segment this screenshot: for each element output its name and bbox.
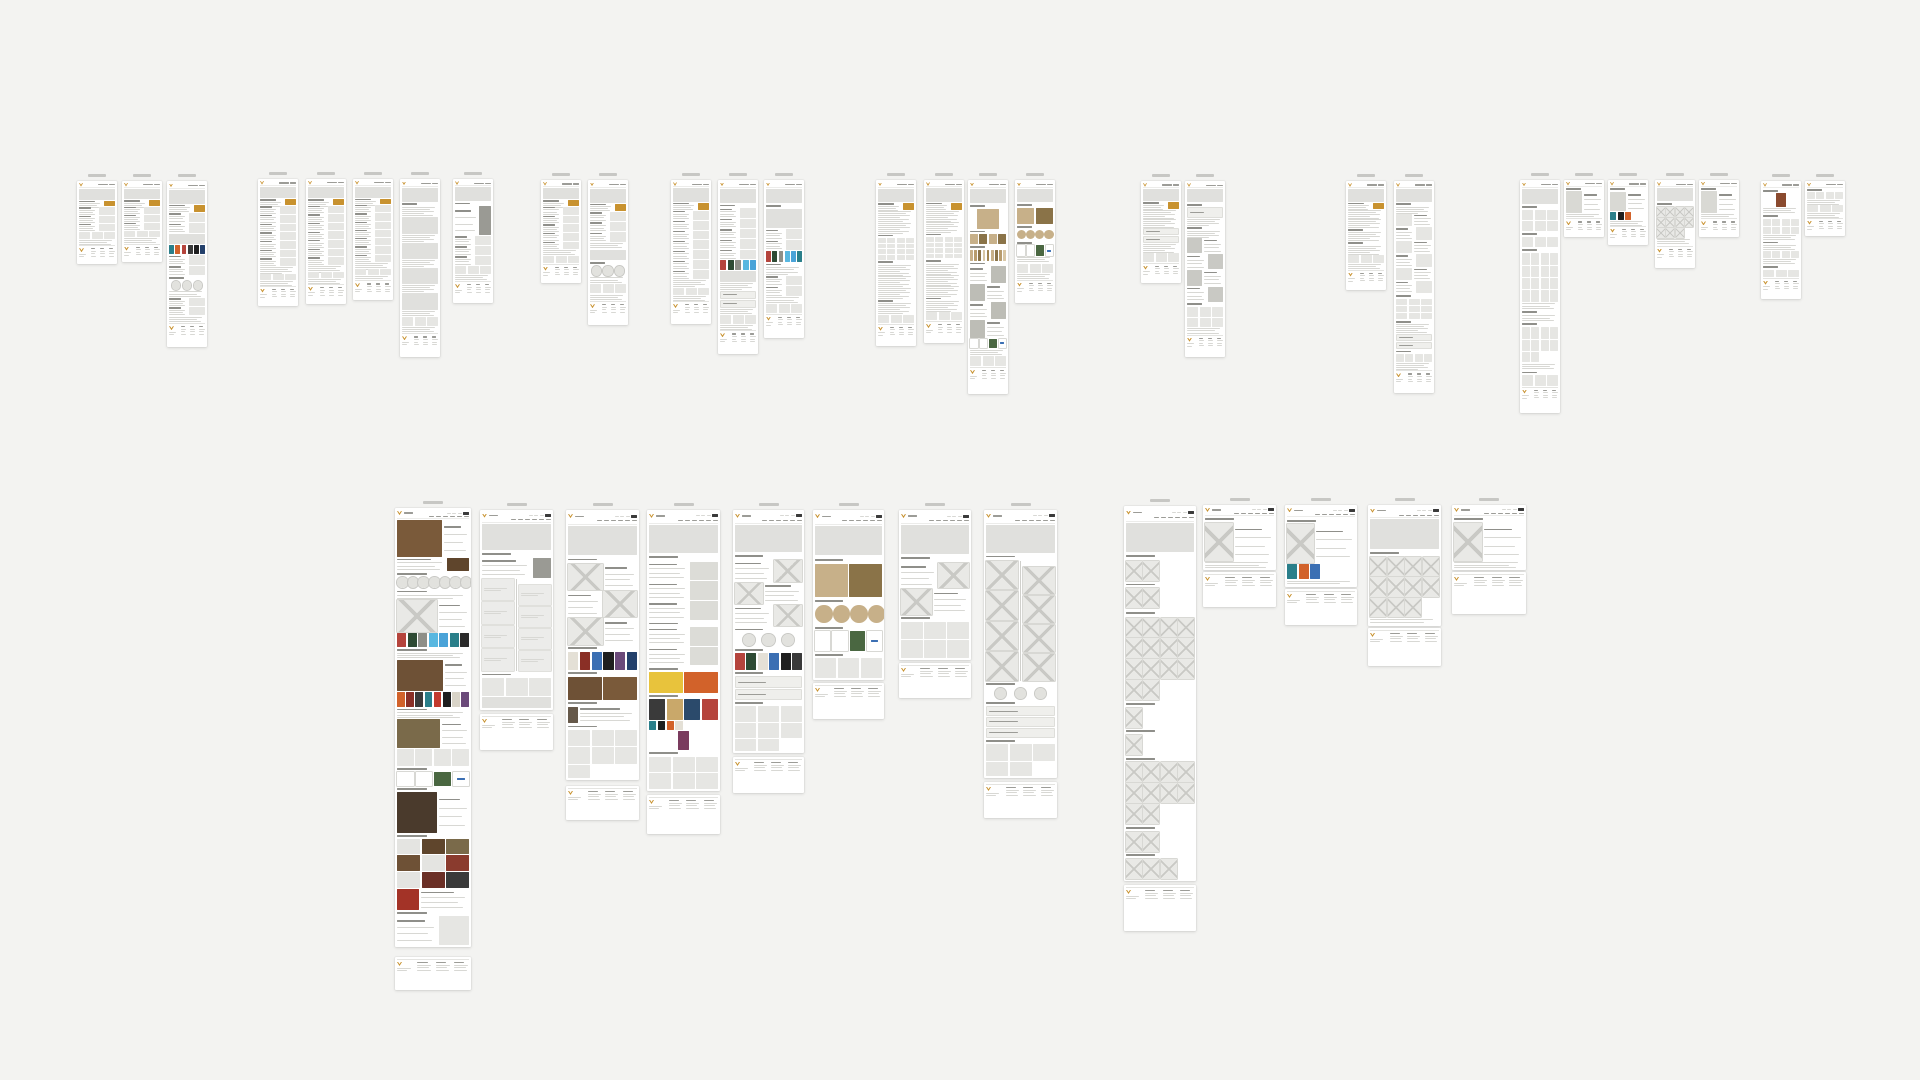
text-line [79,224,91,225]
text-column [543,216,561,224]
page-frame[interactable] [395,508,471,947]
frame-label[interactable] [1230,498,1250,501]
text-line [397,940,432,941]
text-line [669,808,682,809]
row-t [926,297,962,300]
row-f [986,784,1055,816]
page-frame[interactable] [813,683,884,719]
card-cell [429,633,438,648]
text-line [1143,210,1176,211]
text-line [754,767,765,768]
page-frame[interactable] [876,180,916,346]
row-l [402,311,438,317]
image-placeholder [189,266,205,275]
text-line [91,248,95,249]
page-frame[interactable] [480,714,553,750]
frame-label[interactable] [1816,174,1834,177]
logo-icon [308,181,312,185]
image-placeholder [1208,287,1223,302]
page-frame[interactable] [122,181,162,262]
page-frame[interactable] [1203,572,1276,607]
text-line [124,252,131,253]
text-line [169,305,185,306]
page-frame[interactable] [984,510,1057,778]
footer-links-column [145,247,151,260]
frame-label[interactable] [775,173,793,176]
frame-label[interactable] [729,173,747,176]
text-line [421,907,464,908]
text-line [1378,275,1384,276]
card-cell [627,652,637,670]
text-line [1187,223,1219,224]
text-line [1348,232,1381,233]
card-cell [1299,564,1309,578]
card-cell [1396,313,1407,319]
text-line [543,233,555,234]
page-frame[interactable] [1394,181,1434,393]
row-f [1370,630,1439,664]
section-title [1126,758,1155,760]
page-frame[interactable] [924,180,964,343]
text-line [1629,183,1639,184]
frame-label[interactable] [1011,503,1031,506]
page-frame[interactable] [353,179,393,300]
partner-card [815,631,830,651]
text-line [750,336,756,337]
row-f [720,330,756,352]
row-c [1657,207,1693,217]
frame-label[interactable] [1357,174,1375,177]
text-line [1155,273,1160,274]
text-line [878,271,900,272]
partner-card [416,772,433,787]
text-line [1324,599,1335,600]
text-line [308,225,324,226]
frame-label[interactable] [411,172,429,175]
page-frame[interactable] [671,180,711,324]
text-line [355,240,371,241]
card-cell [897,249,905,254]
card-cell [924,640,946,658]
page-frame[interactable] [718,180,758,354]
footer-links-column [602,304,608,323]
card-cell [175,245,180,254]
text-line [1038,515,1042,516]
text-line [260,230,276,231]
text-line [1763,212,1795,213]
frame-label[interactable] [1196,174,1214,177]
frame-label[interactable] [979,173,997,176]
text-line [1154,517,1159,518]
image-placeholder [1396,241,1412,253]
frame-label[interactable] [364,172,382,175]
text-line [611,304,615,305]
text-line [454,967,466,968]
page-frame[interactable] [813,510,884,680]
card-cell [781,653,791,670]
circle-image [397,577,408,588]
empty-slot [1640,212,1646,220]
text-line [489,515,498,516]
text-line [1763,286,1770,287]
text-line [1041,792,1052,793]
empty-slot [1423,598,1439,617]
empty-slot [693,721,700,730]
nav-top-row [482,514,551,518]
page-frame[interactable] [1564,180,1604,237]
green-button-card [850,631,865,651]
text-line [1187,233,1215,234]
card-cell [1541,253,1549,264]
page-frame[interactable] [1203,505,1276,570]
row-c [1017,208,1053,224]
text-line [1522,395,1529,396]
footer-links-column [1006,787,1020,816]
canvas[interactable] [0,0,1920,1080]
row-s [568,591,637,617]
text-line [590,282,622,283]
page-frame[interactable] [566,786,639,820]
card-cell [273,274,284,280]
row-b [1143,183,1179,188]
text-line [329,295,334,296]
hero-block [455,187,491,200]
frame-label[interactable] [317,172,335,175]
text-line [450,516,455,517]
text-line [732,339,737,340]
row-t [1763,189,1799,192]
text-line [355,265,383,266]
frame-label[interactable] [1531,173,1549,176]
page-frame[interactable] [1655,180,1695,268]
text-line [260,271,292,272]
row-c [1763,251,1799,258]
text-line [1622,234,1627,235]
section-title [1763,190,1778,192]
page-frame[interactable] [541,180,581,283]
card-cell [675,721,682,730]
text-line [1722,227,1727,228]
text-line [260,206,272,207]
page-frame[interactable] [1805,181,1845,236]
page-frame[interactable] [1124,885,1196,931]
frame-label[interactable] [1311,498,1331,501]
card-cell [897,238,905,243]
text-line [1204,276,1221,277]
page-frame[interactable] [733,757,804,793]
text-line [1425,641,1438,642]
text-line [397,933,428,934]
card-cell [1541,340,1549,351]
text-line [169,296,201,297]
card-cell [779,304,790,312]
text-line [926,215,958,216]
card-cell [1126,762,1142,782]
page-frame[interactable] [899,510,971,660]
page-frame[interactable] [453,179,493,303]
section-title [970,205,985,207]
frame-label[interactable] [88,174,106,177]
text-line [956,329,961,330]
hero-block [735,525,802,552]
text-line [464,516,469,517]
page-frame[interactable] [566,510,639,780]
row-l [673,296,709,300]
logo-icon [735,762,740,766]
page-frame[interactable] [1285,505,1357,587]
row-f [878,324,914,344]
page-frame[interactable] [1185,181,1225,357]
page-frame[interactable] [1368,628,1441,666]
frame-label[interactable] [925,503,945,506]
text-line [1399,337,1413,338]
circle-image [418,577,429,588]
page-frame[interactable] [1346,181,1386,290]
frame-label[interactable] [1152,174,1170,177]
text-line [539,519,544,520]
frame-label[interactable] [887,173,905,176]
card-cell [1187,318,1198,328]
row-c [1522,375,1558,385]
text-line [720,285,748,286]
text-line [1522,318,1550,319]
text-line [154,247,158,248]
footer-links-column [1155,266,1161,281]
row-s [455,206,491,235]
text-line [897,184,907,185]
text-line [970,273,987,274]
text-line [1763,247,1791,248]
card-cell [901,640,923,658]
card-cell [779,251,784,262]
text-line [519,727,532,728]
row-l [1763,245,1799,250]
row-t [1126,582,1194,587]
page-frame[interactable] [395,957,471,990]
image-placeholder [375,222,391,229]
text-column [308,231,326,239]
text-column [355,246,373,253]
row-t [766,204,802,208]
card-cell [104,232,115,238]
page-frame[interactable] [77,181,117,264]
card-cell [1405,557,1421,576]
frame-label[interactable] [935,173,953,176]
section-title [735,702,763,704]
text-line [1513,509,1517,510]
nav-links-row [1287,514,1355,515]
card-cell [698,288,709,295]
text-line [649,588,685,589]
frame-label[interactable] [178,174,196,177]
text-line [669,803,682,804]
page-frame[interactable] [984,782,1057,818]
text-line [98,184,108,185]
frame-label[interactable] [133,174,151,177]
page-frame[interactable] [1285,589,1357,625]
text-line [439,605,460,606]
card-cell [1033,744,1055,761]
text-line [417,965,431,966]
text-line [720,229,732,230]
page-frame[interactable] [1520,180,1560,413]
text-line [521,659,544,660]
text-line [1713,224,1719,225]
page-frame[interactable] [1141,181,1181,283]
text-line [1622,236,1627,237]
frame-label[interactable] [464,172,482,175]
page-frame[interactable] [764,180,804,338]
text-line [1731,224,1737,225]
text-line [124,209,140,210]
card-cell [906,238,914,243]
frame-label[interactable] [674,503,694,506]
page-frame[interactable] [899,663,971,698]
page-frame[interactable] [258,179,298,306]
row-t [568,671,637,676]
page-frame[interactable] [1124,506,1196,881]
frame-label[interactable] [552,173,570,176]
frame-content [1699,180,1739,237]
page-frame[interactable] [1368,505,1441,626]
row-b [1396,183,1432,188]
page-frame[interactable] [647,795,720,834]
card-cell [1421,306,1432,312]
card-cell [720,315,731,323]
frame-label[interactable] [1772,174,1790,177]
nav-button [796,514,802,517]
text-line [482,574,525,575]
page-frame[interactable] [1015,180,1055,303]
text-line [1584,194,1596,195]
frame-label[interactable] [682,173,700,176]
row-t [1522,248,1558,252]
page-frame[interactable] [306,179,346,304]
frame-label[interactable] [1150,499,1170,502]
text-line [720,219,732,220]
page-frame[interactable] [1761,181,1801,299]
row-l [590,294,626,300]
row-t [901,555,969,561]
footer-links-column [154,247,160,260]
text-line [511,519,516,520]
row-t [1566,188,1602,191]
page-frame[interactable] [400,179,440,357]
text-line [1029,290,1034,291]
text-line [1377,510,1386,511]
row-s [543,242,579,250]
page-frame[interactable] [647,510,720,791]
frame-label[interactable] [423,501,443,504]
row-s [590,232,626,241]
text-line [445,678,464,679]
text-line [1263,509,1267,510]
page-frame[interactable] [733,510,804,753]
row-c [1126,859,1194,879]
text-line [455,241,469,242]
page-frame[interactable] [588,180,628,325]
page-frame[interactable] [1608,180,1648,245]
text-line [947,516,951,517]
frame-label[interactable] [1710,173,1728,176]
row-b [455,181,491,186]
frame-label[interactable] [1619,173,1637,176]
footer-brand-column [402,336,411,355]
frame-label[interactable] [593,503,613,506]
nav-button [712,514,718,517]
card-cell [308,272,319,278]
frame-label[interactable] [1575,173,1593,176]
frame-label[interactable] [839,503,859,506]
text-line [938,668,948,669]
card-cell [439,633,448,648]
text-line [1225,580,1238,581]
text-line [1784,281,1788,282]
frame-label[interactable] [599,173,617,176]
frame-label[interactable] [1395,498,1415,501]
text-line [590,225,606,226]
page-frame[interactable] [1699,180,1739,237]
text-line [402,327,435,328]
page-frame[interactable] [480,510,553,710]
text-line [878,307,910,308]
frame-label[interactable] [1479,498,1499,501]
text-line [1235,537,1271,538]
text-line [987,327,1004,328]
text-line [796,324,801,325]
accordion-row [986,728,1055,738]
text-line [1164,273,1169,274]
card-cell [592,730,614,746]
frame-label[interactable] [1405,174,1423,177]
row-n [970,339,1006,349]
frame-label[interactable] [269,172,287,175]
row-l [1187,328,1223,333]
text-line [604,520,609,521]
text-line [878,305,906,306]
text-line [521,617,538,618]
footer-links-column [750,333,756,352]
page-frame[interactable] [1452,505,1526,570]
row-s [720,239,756,248]
text-line [766,267,799,268]
frame-label[interactable] [507,503,527,506]
frame-label[interactable] [1026,173,1044,176]
frame-content [984,782,1057,818]
page-frame[interactable] [968,180,1008,394]
card-cell [1676,218,1684,228]
text-line [1164,266,1168,267]
partner-card [397,772,414,787]
page-frame[interactable] [167,181,207,347]
text-line [442,737,463,738]
text-column [735,605,772,626]
footer-brand-column [568,791,585,818]
frame-label[interactable] [759,503,779,506]
page-frame[interactable] [1452,572,1526,614]
image-placeholder [563,224,579,232]
text-line [1417,373,1421,374]
footer-brand-column [878,327,887,344]
text-line [878,208,896,209]
text-line [444,534,467,535]
text-line [537,719,547,720]
text-line [169,321,201,322]
row-s [397,660,469,691]
frame-label[interactable] [1666,173,1684,176]
card-cell [878,255,886,260]
text-line [908,329,914,330]
